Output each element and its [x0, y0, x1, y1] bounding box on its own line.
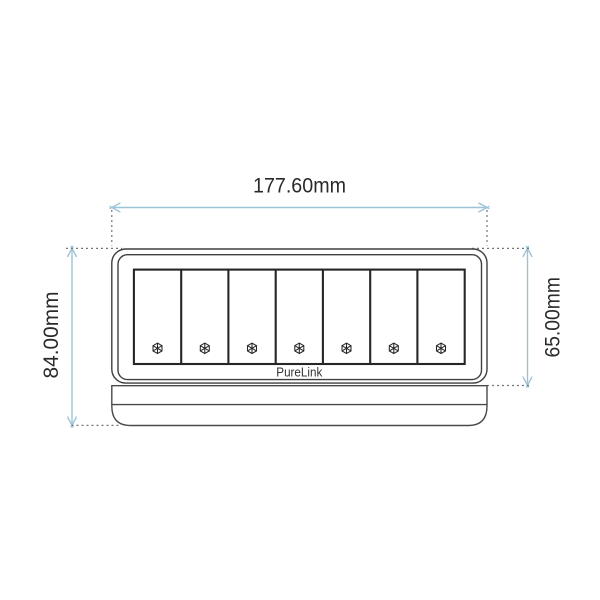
svg-text:84.00mm: 84.00mm	[40, 292, 63, 379]
svg-text:PureLink: PureLink	[276, 366, 323, 380]
svg-text:177.60mm: 177.60mm	[253, 175, 346, 198]
svg-text:65.00mm: 65.00mm	[542, 277, 565, 358]
